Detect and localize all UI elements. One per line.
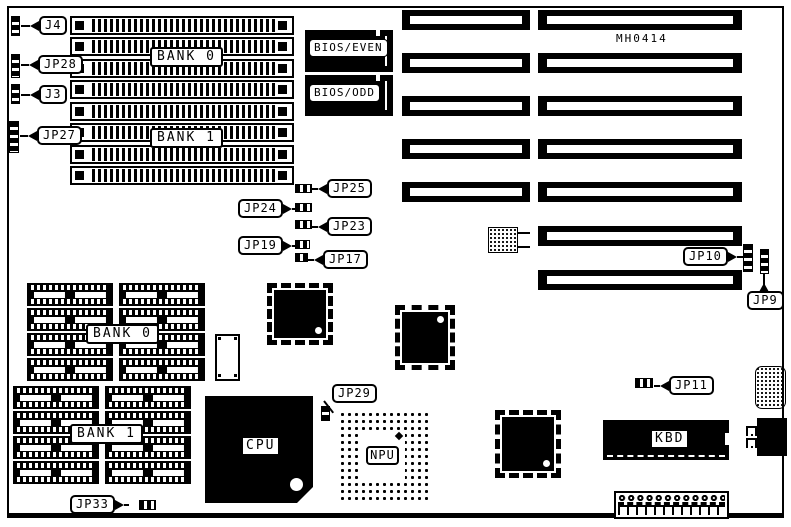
jp10-callout: JP10: [683, 247, 743, 266]
qfp-chip: [495, 410, 561, 478]
pointer-icon: [30, 21, 39, 31]
isa-slot-segment: [538, 139, 742, 159]
leader-line: [737, 256, 743, 258]
jumper-jp28: [11, 54, 20, 78]
jp27-label: JP27: [37, 126, 82, 145]
jp17-label: JP17: [323, 250, 368, 269]
isa-slot-segment: [402, 139, 530, 159]
isa-slot-segment: [538, 182, 742, 202]
bios-even-label: BIOS/EVEN: [309, 39, 388, 57]
dram-socket: [13, 386, 99, 409]
dram-bank0-label: BANK 0: [86, 324, 159, 344]
isa-slot-segment: [538, 10, 742, 30]
isa-slot-segment: [402, 182, 530, 202]
pointer-icon: [30, 90, 39, 100]
leader-line: [292, 208, 298, 210]
leader-line: [20, 135, 28, 137]
simm-slot: [70, 102, 294, 121]
isa-slot-segment: [402, 96, 530, 116]
jp17-callout: JP17: [308, 250, 368, 269]
dram-socket: [119, 358, 205, 381]
jp28-callout: JP28: [21, 55, 83, 74]
jumper-jp9: [760, 249, 769, 274]
j3-callout: J3: [21, 85, 67, 104]
simm-slot: [70, 166, 294, 185]
dram-socket: [27, 283, 113, 306]
isa-slot-segment: [538, 270, 742, 290]
pointer-icon: [283, 241, 292, 251]
j4-callout: J4: [21, 16, 67, 35]
jp27-callout: JP27: [20, 126, 82, 145]
jp24-label: JP24: [238, 199, 283, 218]
cpu-chip: CPU: [205, 396, 313, 503]
jp11-label: JP11: [669, 376, 714, 395]
oscillator-module: [488, 227, 518, 253]
leader-line: [21, 25, 30, 27]
j4-label: J4: [39, 16, 67, 35]
jumper-jp23: [295, 220, 312, 229]
simm-bank0-label: BANK 0: [150, 47, 223, 67]
isa-slot-segment: [538, 53, 742, 73]
qfp-chip: [267, 283, 333, 345]
npu-socket-center: NPU: [360, 430, 405, 480]
bios-odd-chip: BIOS/ODD: [305, 75, 393, 116]
pin1-dot: [437, 316, 444, 323]
connector-pin: [746, 438, 757, 448]
npu-label: NPU: [366, 446, 399, 465]
simm-bank1-label: BANK 1: [150, 128, 223, 148]
keyboard-din-connector: [757, 418, 787, 456]
leader-line: [21, 94, 30, 96]
jp23-label: JP23: [327, 217, 372, 236]
jp11-callout: JP11: [654, 376, 714, 395]
jp25-label: JP25: [327, 179, 372, 198]
jp28-label: JP28: [38, 55, 83, 74]
header-pins-round: [618, 495, 725, 501]
dram-socket: [27, 358, 113, 381]
jumper-jp10: [743, 244, 753, 272]
jp29-label: JP29: [332, 384, 377, 403]
isa-slot-segment: [402, 53, 530, 73]
pin1-dot: [315, 327, 322, 334]
pointer-icon: [318, 184, 327, 194]
jp19-label: JP19: [238, 236, 283, 255]
jumper-jp11: [635, 378, 653, 388]
power-supply-header: [614, 491, 729, 519]
dram-socket: [105, 461, 191, 484]
jumper-jp25: [295, 184, 312, 193]
crystal-oscillator: [215, 334, 240, 381]
pin1-dot: [543, 460, 550, 467]
simm-slot: [70, 80, 294, 99]
keyboard-controller-chip: KBD: [603, 420, 729, 460]
jp23-callout: JP23: [312, 217, 372, 236]
header-pins-square: [618, 505, 725, 515]
dram-socket: [119, 283, 205, 306]
pin1-dot: [290, 478, 303, 491]
jp33-label: JP33: [70, 495, 115, 514]
j3-label: J3: [39, 85, 67, 104]
jumper-jp33: [139, 500, 156, 510]
jp25-callout: JP25: [312, 179, 372, 198]
pointer-icon: [28, 131, 37, 141]
leader-line: [124, 504, 129, 506]
jumper-jp27: [9, 121, 19, 153]
leader-line: [292, 245, 298, 247]
pointer-icon: [115, 500, 124, 510]
bios-even-chip: BIOS/EVEN: [305, 30, 393, 72]
jumper-j4: [11, 16, 20, 36]
bios-odd-label: BIOS/ODD: [309, 84, 380, 102]
motherboard-diagram: BANK 0 BANK 1 J4 JP28 J3 JP27 BIOS/EVEN …: [0, 0, 791, 527]
kbd-label: KBD: [652, 431, 687, 447]
leader-line: [21, 64, 29, 66]
isa-slot-segment: [538, 226, 742, 246]
pointer-icon: [314, 255, 323, 265]
jp9-label: JP9: [747, 291, 784, 310]
npu-socket: NPU: [337, 409, 428, 503]
simm-slot: [70, 16, 294, 35]
isa-slot-segment: [402, 10, 530, 30]
jp10-label: JP10: [683, 247, 728, 266]
pointer-icon: [660, 381, 669, 391]
connector-pin: [746, 426, 757, 436]
jp33-callout: JP33: [70, 495, 129, 514]
isa-slot-segment: [538, 96, 742, 116]
jp19-callout: JP19: [238, 236, 298, 255]
pointer-icon: [318, 222, 327, 232]
power-connector: [755, 366, 786, 409]
jp24-callout: JP24: [238, 199, 298, 218]
jumper-j3: [11, 84, 20, 104]
pointer-icon: [728, 252, 737, 262]
pointer-icon: [283, 204, 292, 214]
dram-socket: [13, 461, 99, 484]
pointer-icon: [29, 60, 38, 70]
dram-socket: [105, 386, 191, 409]
cpu-label: CPU: [243, 438, 278, 454]
part-number: MH0414: [616, 32, 668, 45]
dram-bank1-label: BANK 1: [70, 424, 143, 444]
jumper-jp29: [321, 406, 330, 421]
qfp-chip: [395, 305, 455, 370]
